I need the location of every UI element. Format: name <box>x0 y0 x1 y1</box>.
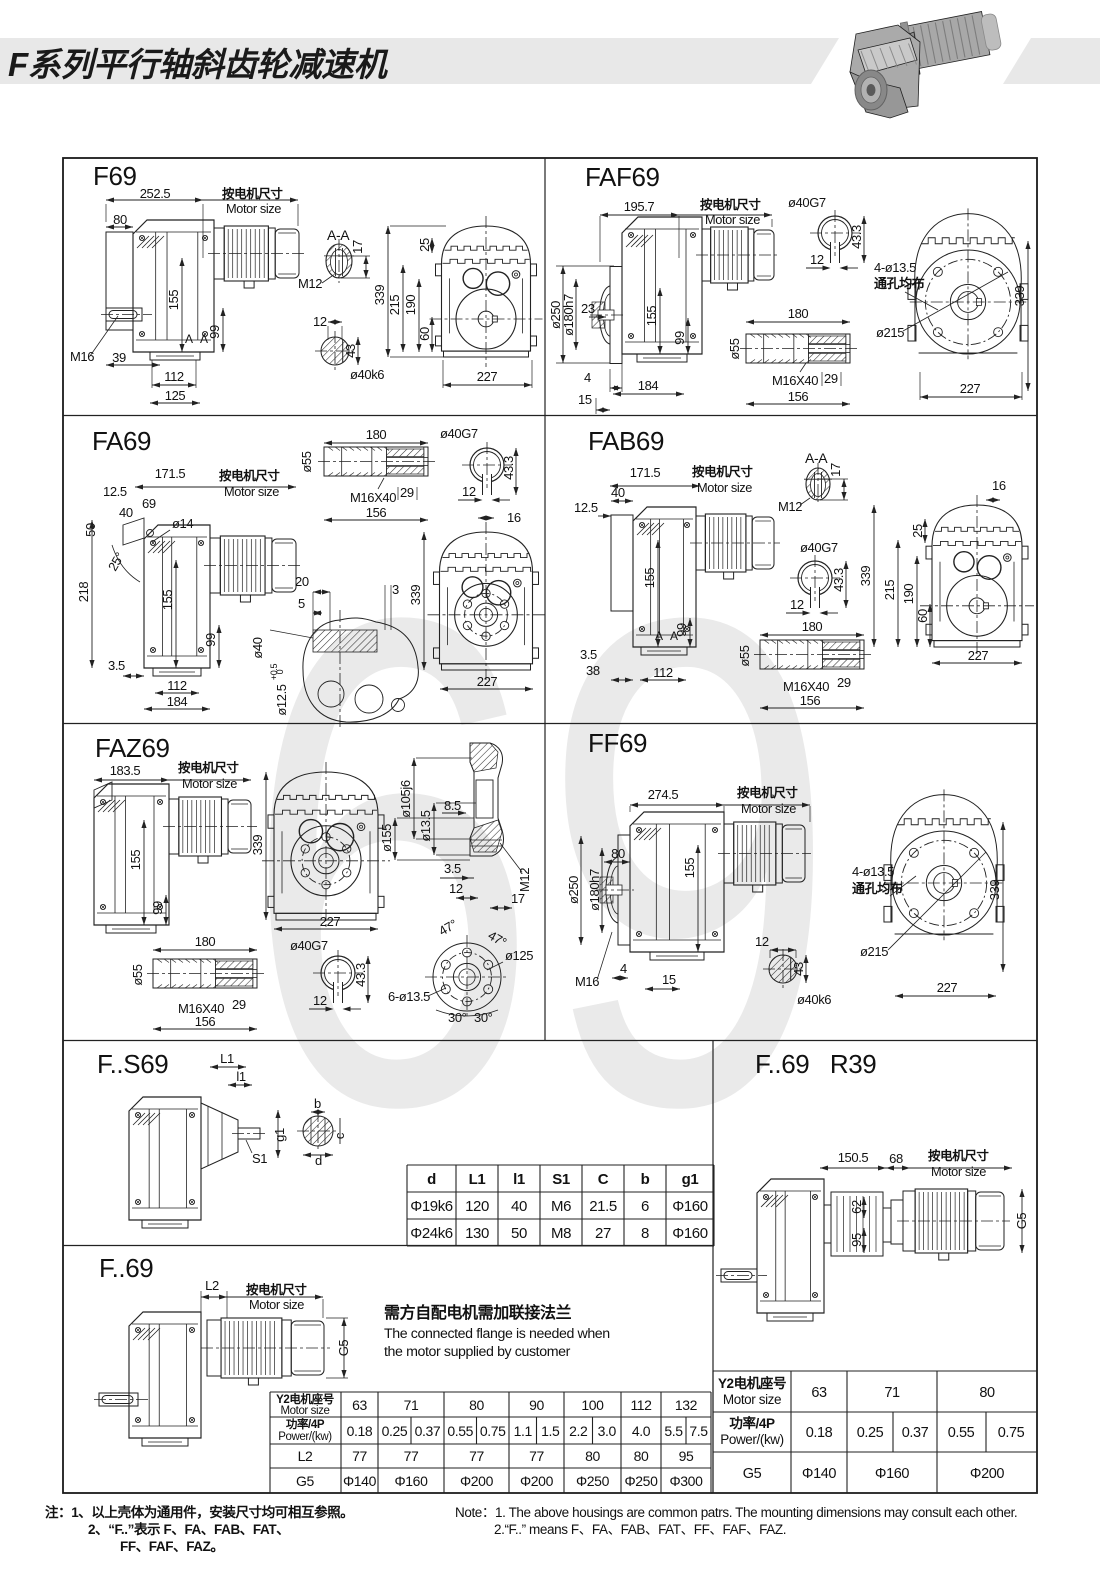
svg-text:68: 68 <box>889 1151 903 1166</box>
svg-text:63: 63 <box>352 1397 367 1413</box>
svg-text:0.37: 0.37 <box>902 1425 929 1441</box>
svg-text:227: 227 <box>960 381 981 396</box>
svg-text:Φ200: Φ200 <box>970 1466 1004 1482</box>
svg-text:3: 3 <box>392 582 399 597</box>
svg-text:G5: G5 <box>1014 1213 1029 1230</box>
svg-text:Φ200: Φ200 <box>460 1473 494 1489</box>
svg-text:F系列平行轴斜齿轮减速机: F系列平行轴斜齿轮减速机 <box>8 46 389 83</box>
svg-text:F69: F69 <box>93 161 137 191</box>
svg-text:227: 227 <box>477 369 498 384</box>
svg-text:g1: g1 <box>272 1128 287 1142</box>
svg-text:M6: M6 <box>551 1198 571 1215</box>
svg-text:339: 339 <box>408 585 423 606</box>
svg-text:l1: l1 <box>513 1171 525 1188</box>
svg-text:6: 6 <box>641 1198 649 1215</box>
svg-text:38: 38 <box>586 663 600 678</box>
svg-text:ø40G7: ø40G7 <box>290 938 328 953</box>
svg-text:Φ160: Φ160 <box>672 1198 707 1215</box>
svg-text:Note：1. The above housings ar: Note：1. The above housings are common pa… <box>455 1505 1017 1520</box>
svg-text:M12: M12 <box>778 499 802 514</box>
svg-text:ø215: ø215 <box>876 325 904 340</box>
svg-text:4: 4 <box>620 961 627 976</box>
svg-text:77: 77 <box>469 1448 484 1464</box>
svg-text:155: 155 <box>166 290 181 311</box>
svg-text:227: 227 <box>968 648 989 663</box>
svg-text:155: 155 <box>160 590 175 611</box>
svg-text:Φ300: Φ300 <box>670 1473 704 1489</box>
svg-text:M16X40: M16X40 <box>772 373 818 388</box>
svg-text:227: 227 <box>477 674 498 689</box>
svg-text:180: 180 <box>788 306 809 321</box>
svg-text:12: 12 <box>462 484 476 499</box>
svg-text:G5: G5 <box>743 1466 762 1482</box>
svg-text:132: 132 <box>675 1397 698 1413</box>
svg-text:43.3: 43.3 <box>849 225 864 249</box>
svg-text:43.3: 43.3 <box>501 456 516 480</box>
svg-text:99: 99 <box>672 331 687 345</box>
svg-text:6-ø13.5: 6-ø13.5 <box>388 989 430 1004</box>
svg-text:40: 40 <box>511 1198 527 1215</box>
svg-text:80: 80 <box>634 1448 649 1464</box>
svg-text:12: 12 <box>755 934 769 949</box>
svg-text:ø40k6: ø40k6 <box>797 992 831 1007</box>
svg-text:ø250: ø250 <box>566 876 581 904</box>
svg-text:150.5: 150.5 <box>838 1150 869 1165</box>
svg-text:L2: L2 <box>298 1448 313 1464</box>
svg-text:17: 17 <box>828 463 843 477</box>
svg-text:按电机尺寸: 按电机尺寸 <box>928 1148 989 1163</box>
svg-text:2.“F..” means F、FA、FAB、FAT、FF: 2.“F..” means F、FA、FAB、FAT、FF、FAF、FAZ. <box>494 1522 786 1537</box>
svg-text:Φ160: Φ160 <box>672 1225 707 1242</box>
svg-text:27: 27 <box>595 1225 611 1242</box>
svg-text:171.5: 171.5 <box>155 466 186 481</box>
svg-text:FAB69: FAB69 <box>588 426 664 456</box>
svg-text:M12: M12 <box>517 868 532 892</box>
svg-text:3.5: 3.5 <box>108 658 125 673</box>
svg-text:ø14: ø14 <box>172 516 193 531</box>
svg-text:0.25: 0.25 <box>382 1423 408 1439</box>
svg-text:252.5: 252.5 <box>140 186 171 201</box>
svg-text:Φ140: Φ140 <box>343 1473 377 1489</box>
svg-text:Motor size: Motor size <box>280 1405 329 1417</box>
svg-text:Φ250: Φ250 <box>625 1473 659 1489</box>
svg-text:ø55: ø55 <box>737 645 752 666</box>
svg-text:43: 43 <box>343 344 358 358</box>
svg-text:3.5: 3.5 <box>444 861 461 876</box>
svg-text:ø12.5: ø12.5 <box>274 684 289 715</box>
svg-text:12: 12 <box>313 314 327 329</box>
svg-text:L1: L1 <box>469 1171 486 1188</box>
svg-text:3.5: 3.5 <box>580 647 597 662</box>
svg-text:M16X40: M16X40 <box>350 490 396 505</box>
svg-text:17: 17 <box>350 240 365 254</box>
svg-text:Motor size: Motor size <box>931 1164 986 1179</box>
svg-text:156: 156 <box>800 693 821 708</box>
svg-text:4.0: 4.0 <box>632 1423 651 1439</box>
svg-text:ø40k6: ø40k6 <box>350 367 384 382</box>
svg-text:c: c <box>332 1132 347 1139</box>
svg-text:FF、FAF、FAZ。: FF、FAF、FAZ。 <box>120 1539 224 1554</box>
svg-text:80: 80 <box>585 1448 600 1464</box>
svg-text:90: 90 <box>529 1397 544 1413</box>
svg-text:The connected flange is needed: The connected flange is needed when <box>384 1326 610 1342</box>
svg-text:M16: M16 <box>575 974 599 989</box>
svg-text:Φ19k6: Φ19k6 <box>410 1198 453 1215</box>
svg-text:12: 12 <box>313 993 327 1008</box>
svg-text:Φ250: Φ250 <box>576 1473 610 1489</box>
svg-text:274.5: 274.5 <box>648 787 679 802</box>
svg-text:4-ø13.5: 4-ø13.5 <box>852 864 894 879</box>
svg-text:G5: G5 <box>336 1340 351 1357</box>
svg-text:16: 16 <box>992 478 1006 493</box>
svg-text:39: 39 <box>112 350 126 365</box>
svg-text:Motor size: Motor size <box>224 484 279 499</box>
svg-text:ø180h7: ø180h7 <box>561 294 576 336</box>
svg-text:0.75: 0.75 <box>480 1423 506 1439</box>
svg-text:40: 40 <box>119 505 133 520</box>
svg-text:Φ200: Φ200 <box>520 1473 554 1489</box>
svg-text:21.5: 21.5 <box>589 1198 617 1215</box>
svg-text:125: 125 <box>165 388 186 403</box>
svg-text:FAZ69: FAZ69 <box>95 733 170 763</box>
svg-text:0.18: 0.18 <box>806 1425 833 1441</box>
svg-text:339: 339 <box>858 566 873 587</box>
svg-text:A: A <box>670 629 678 643</box>
svg-text:2、“F..”表示 F、FA、FAB、FAT、: 2、“F..”表示 F、FA、FAB、FAT、 <box>88 1521 289 1537</box>
svg-text:43.3: 43.3 <box>353 963 368 987</box>
svg-text:29: 29 <box>824 371 838 386</box>
svg-text:1.1: 1.1 <box>514 1423 533 1439</box>
svg-text:0.55: 0.55 <box>948 1425 975 1441</box>
svg-text:15: 15 <box>662 972 676 987</box>
svg-text:16: 16 <box>507 510 521 525</box>
svg-text:A: A <box>200 332 208 346</box>
svg-text:12.5: 12.5 <box>574 500 598 515</box>
svg-text:the motor supplied by customer: the motor supplied by customer <box>384 1344 571 1360</box>
svg-text:69: 69 <box>142 496 156 511</box>
svg-text:77: 77 <box>352 1448 367 1464</box>
svg-text:0.18: 0.18 <box>347 1423 373 1439</box>
svg-text:Φ140: Φ140 <box>802 1466 836 1482</box>
svg-text:17: 17 <box>511 891 525 906</box>
svg-text:3.0: 3.0 <box>598 1423 617 1439</box>
svg-text:77: 77 <box>404 1448 419 1464</box>
svg-text:7.5: 7.5 <box>689 1423 708 1439</box>
svg-text:339: 339 <box>1012 286 1027 307</box>
svg-text:0: 0 <box>275 669 285 674</box>
svg-text:12.5: 12.5 <box>103 484 127 499</box>
svg-text:29: 29 <box>232 997 246 1012</box>
svg-text:S1: S1 <box>252 1151 267 1166</box>
svg-text:29: 29 <box>400 485 414 500</box>
svg-text:Motor size: Motor size <box>697 480 752 495</box>
svg-text:95: 95 <box>849 1233 864 1247</box>
svg-text:99: 99 <box>150 901 165 915</box>
svg-text:171.5: 171.5 <box>630 465 661 480</box>
svg-text:339: 339 <box>372 285 387 306</box>
svg-text:130: 130 <box>465 1225 489 1242</box>
svg-text:通孔均布: 通孔均布 <box>852 881 903 896</box>
svg-text:Motor size: Motor size <box>249 1297 304 1312</box>
svg-text:30°: 30° <box>474 1010 493 1025</box>
svg-text:Power/(kw): Power/(kw) <box>278 1431 332 1443</box>
svg-text:112: 112 <box>653 665 673 680</box>
svg-text:63: 63 <box>811 1385 827 1401</box>
svg-text:1.5: 1.5 <box>541 1423 560 1439</box>
svg-text:按电机尺寸: 按电机尺寸 <box>700 197 761 212</box>
svg-text:40: 40 <box>611 485 625 500</box>
svg-text:功率/4P: 功率/4P <box>286 1417 325 1431</box>
svg-text:L1: L1 <box>220 1051 234 1066</box>
svg-text:156: 156 <box>788 389 809 404</box>
svg-text:25: 25 <box>910 524 925 538</box>
svg-text:b: b <box>314 1096 321 1111</box>
svg-text:184: 184 <box>638 378 659 393</box>
svg-text:0.75: 0.75 <box>998 1425 1025 1441</box>
svg-text:ø55: ø55 <box>130 964 145 985</box>
svg-text:Power/(kw): Power/(kw) <box>720 1432 784 1447</box>
svg-text:0.37: 0.37 <box>415 1423 441 1439</box>
svg-text:ø180h7: ø180h7 <box>587 869 602 911</box>
svg-text:43.3: 43.3 <box>831 568 846 592</box>
svg-text:8: 8 <box>641 1225 649 1242</box>
svg-text:20: 20 <box>295 574 309 589</box>
svg-text:60: 60 <box>915 609 930 623</box>
svg-text:12: 12 <box>810 252 824 267</box>
svg-text:4: 4 <box>584 370 591 385</box>
svg-text:ø105j6: ø105j6 <box>398 780 413 818</box>
svg-text:155: 155 <box>642 568 657 589</box>
svg-text:G5: G5 <box>296 1473 314 1489</box>
svg-text:FF69: FF69 <box>588 728 647 758</box>
svg-text:180: 180 <box>366 427 387 442</box>
svg-text:155: 155 <box>644 306 659 327</box>
svg-text:112: 112 <box>167 678 187 693</box>
svg-text:M16: M16 <box>70 349 94 364</box>
svg-text:Φ160: Φ160 <box>875 1466 909 1482</box>
svg-text:25: 25 <box>417 238 432 252</box>
svg-text:99: 99 <box>207 325 222 339</box>
svg-text:60: 60 <box>417 327 432 341</box>
svg-text:按电机尺寸: 按电机尺寸 <box>178 760 239 775</box>
svg-text:195.7: 195.7 <box>624 199 655 214</box>
svg-text:80: 80 <box>469 1397 484 1413</box>
svg-text:15: 15 <box>578 392 592 407</box>
svg-text:Φ160: Φ160 <box>395 1473 429 1489</box>
svg-text:按电机尺寸: 按电机尺寸 <box>246 1282 307 1297</box>
svg-text:按电机尺寸: 按电机尺寸 <box>222 186 283 201</box>
svg-text:ø55: ø55 <box>727 338 742 359</box>
svg-text:F..69 R39: F..69 R39 <box>755 1049 876 1079</box>
svg-text:0.55: 0.55 <box>447 1423 473 1439</box>
svg-text:80: 80 <box>979 1385 995 1401</box>
svg-text:Motor size: Motor size <box>723 1392 781 1407</box>
svg-text:ø125: ø125 <box>505 948 533 963</box>
svg-text:S1: S1 <box>552 1171 570 1188</box>
svg-text:30°: 30° <box>448 1010 467 1025</box>
svg-text:43: 43 <box>791 962 806 976</box>
svg-text:227: 227 <box>937 980 958 995</box>
svg-text:156: 156 <box>366 505 387 520</box>
svg-text:155: 155 <box>682 858 697 879</box>
svg-text:112: 112 <box>630 1397 652 1413</box>
svg-text:190: 190 <box>403 295 418 316</box>
svg-text:ø40G7: ø40G7 <box>788 195 826 210</box>
svg-text:FAF69: FAF69 <box>585 162 660 192</box>
svg-text:A-A: A-A <box>805 450 828 466</box>
svg-text:71: 71 <box>884 1385 900 1401</box>
svg-text:218: 218 <box>76 582 91 603</box>
svg-text:215: 215 <box>387 295 402 316</box>
svg-text:120: 120 <box>465 1198 489 1215</box>
svg-text:ø55: ø55 <box>299 451 314 472</box>
svg-text:Y2电机座号: Y2电机座号 <box>276 1392 334 1406</box>
svg-text:12: 12 <box>449 881 463 896</box>
svg-text:Motor size: Motor size <box>741 801 796 816</box>
svg-text:155: 155 <box>128 850 143 871</box>
svg-text:ø40G7: ø40G7 <box>800 540 838 555</box>
svg-text:156: 156 <box>195 1014 216 1029</box>
svg-text:按电机尺寸: 按电机尺寸 <box>692 464 753 479</box>
svg-text:183.5: 183.5 <box>110 763 141 778</box>
svg-text:4-ø13.5: 4-ø13.5 <box>874 260 916 275</box>
svg-text:l1: l1 <box>236 1069 245 1084</box>
svg-text:ø215: ø215 <box>860 944 888 959</box>
svg-text:需方自配电机需加联接法兰: 需方自配电机需加联接法兰 <box>384 1303 572 1322</box>
svg-text:339: 339 <box>987 880 1002 901</box>
svg-text:C: C <box>598 1171 609 1188</box>
svg-text:99: 99 <box>203 633 218 647</box>
svg-text:Motor size: Motor size <box>226 201 281 216</box>
svg-text:ø155: ø155 <box>379 824 394 852</box>
svg-text:ø13.5: ø13.5 <box>418 810 433 841</box>
svg-text:M8: M8 <box>551 1225 571 1242</box>
svg-text:0.25: 0.25 <box>857 1425 884 1441</box>
svg-text:M12: M12 <box>298 276 322 291</box>
svg-text:按电机尺寸: 按电机尺寸 <box>737 785 798 800</box>
svg-text:b: b <box>641 1171 650 1188</box>
svg-text:Motor size: Motor size <box>182 776 237 791</box>
svg-text:A: A <box>655 629 663 643</box>
svg-text:184: 184 <box>167 694 188 709</box>
svg-text:50: 50 <box>511 1225 527 1242</box>
svg-text:80: 80 <box>113 212 127 227</box>
svg-text:5: 5 <box>298 596 305 611</box>
svg-text:95: 95 <box>679 1448 694 1464</box>
svg-text:12: 12 <box>790 597 804 612</box>
svg-text:339: 339 <box>250 835 265 856</box>
svg-text:71: 71 <box>404 1397 419 1413</box>
svg-text:按电机尺寸: 按电机尺寸 <box>219 468 280 483</box>
svg-text:29: 29 <box>837 675 851 690</box>
svg-text:M16X40: M16X40 <box>783 679 829 694</box>
svg-text:227: 227 <box>320 914 341 929</box>
svg-text:g1: g1 <box>682 1171 699 1188</box>
svg-text:112: 112 <box>164 369 184 384</box>
svg-text:Y2电机座号: Y2电机座号 <box>718 1375 786 1391</box>
svg-text:L2: L2 <box>205 1278 219 1293</box>
svg-text:180: 180 <box>802 619 823 634</box>
svg-text:F..69: F..69 <box>99 1253 153 1283</box>
svg-text:2.2: 2.2 <box>569 1423 588 1439</box>
svg-text:A: A <box>185 332 193 346</box>
svg-text:d: d <box>427 1171 436 1188</box>
svg-text:功率/4P: 功率/4P <box>729 1415 775 1431</box>
svg-text:注：1、以上壳体为通用件，安装尺寸均可相互参照。: 注：1、以上壳体为通用件，安装尺寸均可相互参照。 <box>45 1504 353 1520</box>
svg-text:100: 100 <box>581 1397 604 1413</box>
svg-text:通孔均布: 通孔均布 <box>874 276 925 291</box>
svg-text:Motor size: Motor size <box>705 212 760 227</box>
svg-text:190: 190 <box>901 584 916 605</box>
svg-text:77: 77 <box>529 1448 544 1464</box>
svg-text:5.5: 5.5 <box>664 1423 683 1439</box>
svg-text:Φ24k6: Φ24k6 <box>410 1225 453 1242</box>
svg-text:62: 62 <box>849 1200 864 1214</box>
svg-text:23: 23 <box>581 301 595 316</box>
svg-text:215: 215 <box>882 580 897 601</box>
svg-text:ø40G7: ø40G7 <box>440 426 478 441</box>
svg-text:180: 180 <box>195 934 216 949</box>
svg-text:ø40: ø40 <box>250 637 265 658</box>
svg-text:FA69: FA69 <box>92 426 151 456</box>
svg-text:F..S69: F..S69 <box>97 1049 168 1079</box>
